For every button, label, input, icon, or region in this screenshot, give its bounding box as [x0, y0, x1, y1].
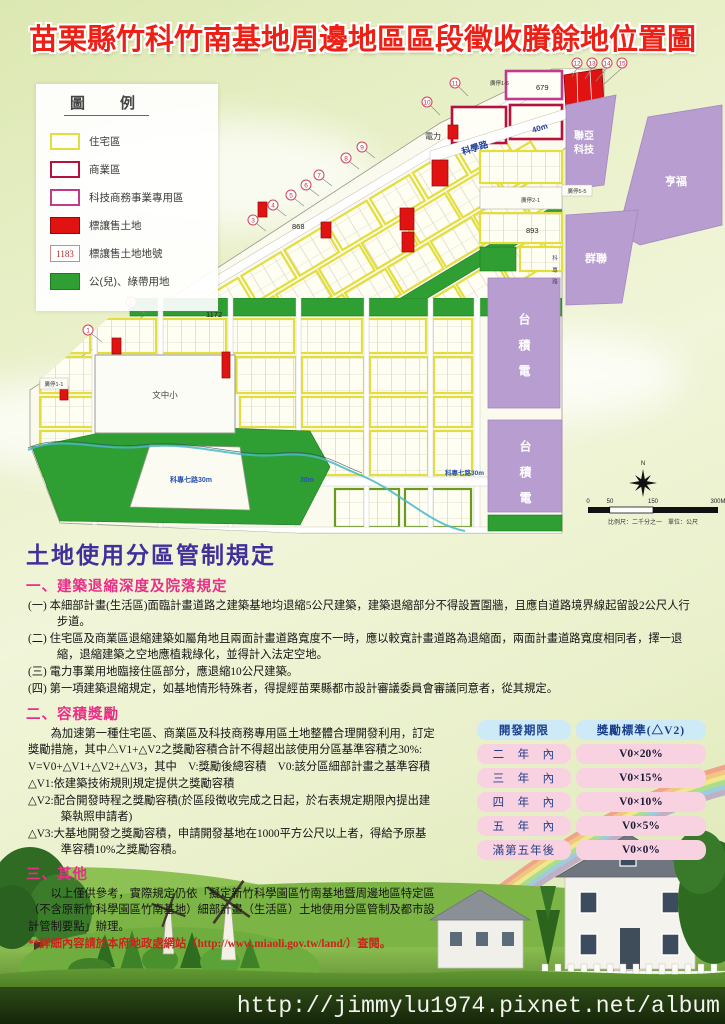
- road-kezhuan7b-label: 科專七路30m: [445, 468, 484, 477]
- watermark-url: http://jimmylu1974.pixnet.net/album: [0, 987, 725, 1024]
- power-label: 電力: [425, 131, 441, 141]
- legend-item-residential: 住宅區: [50, 133, 208, 150]
- parking-1-1-label: 廣停1-1: [45, 380, 64, 388]
- svg-text:13: 13: [588, 61, 596, 68]
- svg-text:3: 3: [251, 218, 255, 225]
- regulations-section: 土地使用分區管制規定 一、建築退縮深度及院落規定 (一) 本細部計畫(生活區)面…: [0, 536, 725, 953]
- rule-paragraph: △V2:配合開發時程之獎勵容積(於區段徵收完成之日起，於右表規定期限內提出建築執…: [28, 793, 436, 825]
- company-tsmc-label-2: 台積電: [518, 439, 532, 504]
- rule-item: (一) 本細部計畫(生活區)面臨計畫道路之建築基地均退縮5公尺建築，建築退縮部分…: [28, 598, 699, 630]
- tech-swatch: [50, 189, 80, 206]
- rule-paragraph: 以上僅供參考，實際規定仍依「擬定新竹科學園區竹南基地暨周邊地區特定區（不含原新竹…: [28, 886, 436, 934]
- website-note: **詳細內容請於本府地政處網站（http://www.miaoli.gov.tw…: [28, 936, 436, 952]
- table-row: 滿第五年後 V0×0%: [477, 840, 706, 860]
- legend-item-tech: 科技商務事業專用區: [50, 189, 208, 206]
- svg-text:1: 1: [86, 328, 90, 335]
- table-row: 四 年 內 V0×10%: [477, 792, 706, 812]
- rule-paragraph: △V1:依建築技術規則規定提供之獎勵容積: [28, 776, 436, 792]
- incentive-table: 開發期限 獎勵標準(△V2) 二 年 內 V0×20% 三 年 內 V0×15%…: [472, 716, 711, 864]
- table-row: 三 年 內 V0×15%: [477, 768, 706, 788]
- svg-text:0: 0: [586, 499, 590, 505]
- parking-5-5-label: 廣停5-5: [568, 187, 587, 195]
- section-3-heading: 三、其他: [26, 863, 462, 884]
- page-root: 苗栗縣竹科竹南基地周邊地區區段徵收賸餘地位置圖: [0, 0, 725, 1024]
- table-row: 二 年 內 V0×20%: [477, 744, 706, 764]
- regulations-title: 土地使用分區管制規定: [26, 536, 725, 570]
- company-tsmc-label-1: 台積電: [517, 312, 531, 377]
- incentive-table-container: 開發期限 獎勵標準(△V2) 二 年 內 V0×20% 三 年 內 V0×15%…: [462, 698, 725, 864]
- section-1-heading: 一、建築退縮深度及院落規定: [26, 575, 725, 596]
- company-lianya-label-2: 科技: [574, 143, 595, 156]
- legend-item-park: 公(兒)、綠帶用地: [50, 273, 208, 290]
- svg-text:9: 9: [360, 145, 364, 152]
- company-qunlian-label: 群聯: [584, 251, 607, 265]
- compass-icon: N: [629, 461, 657, 497]
- table-row: 五 年 內 V0×5%: [477, 816, 706, 836]
- road-kezhuan-label: 科專路: [551, 254, 558, 286]
- svg-text:12: 12: [573, 61, 581, 68]
- rule-item: (四) 第一項建築退縮規定，如基地情形特殊者，得提經苗栗縣都市設計審議委員會審議…: [28, 681, 699, 697]
- svg-text:N: N: [641, 461, 645, 467]
- svg-text:14: 14: [603, 61, 611, 68]
- rule-item: (二) 住宅區及商業區退縮建築如屬角地且兩面計畫道路寬度不一時，應以較寬計畫道路…: [28, 631, 699, 663]
- svg-text:15: 15: [618, 61, 626, 68]
- company-lianya-label-1: 聯亞: [574, 129, 594, 142]
- regulations-left-column: 二、容積獎勵 為加速第一種住宅區、商業區及科技商務專用區土地整體合理開發利用，訂…: [0, 698, 462, 952]
- sale-swatch: [50, 217, 80, 234]
- parking-1-6-label: 廣停1-6: [490, 79, 509, 87]
- scale-caption: 比例尺：二千分之一 單位：公尺: [608, 518, 698, 526]
- legend-item-sale: 標讓售土地: [50, 217, 208, 234]
- parcel-893: 893: [526, 226, 539, 235]
- rule-paragraph: 為加速第一種住宅區、商業區及科技商務專用區土地整體合理開發利用，訂定獎勵措施，其…: [28, 726, 436, 758]
- section-2-heading: 二、容積獎勵: [26, 703, 462, 724]
- page-title: 苗栗縣竹科竹南基地周邊地區區段徵收賸餘地位置圖: [0, 16, 725, 58]
- legend-title: 圖 例: [64, 92, 149, 116]
- svg-text:11: 11: [452, 81, 459, 88]
- svg-text:300M: 300M: [710, 499, 725, 505]
- svg-text:7: 7: [317, 173, 321, 180]
- company-hengfu-label: 亨福: [665, 174, 687, 188]
- rule-paragraph: △V3:大基地開發之獎勵容積，申請開發基地在1000平方公尺以上者，得給予原基準…: [28, 826, 436, 858]
- svg-text:6: 6: [304, 183, 308, 190]
- legend-item-commercial: 商業區: [50, 161, 208, 178]
- svg-text:5: 5: [289, 193, 293, 200]
- residential-swatch: [50, 133, 80, 150]
- road-30m-label: 30m: [300, 477, 314, 484]
- rule-paragraph: V=V0+△V1+△V2+△V3，其中 V:獎勵後總容積 V0:該分區細部計畫之…: [28, 759, 436, 775]
- legend-item-parcel-number: 1183 標讓售土地地號: [50, 245, 208, 262]
- park-swatch: [50, 273, 80, 290]
- scale-bar: 0 50 150 300M 比例尺：二千分之一 單位：公尺: [586, 499, 725, 526]
- road-kezhuan7-label: 科專七路30m: [170, 475, 212, 484]
- table-header-value: 獎勵標準(△V2): [576, 720, 706, 740]
- svg-text:50: 50: [607, 499, 614, 505]
- map-legend: 圖 例 住宅區 商業區 科技商務事業專用區 標讓售土地 1183 標讓售土地地號…: [36, 84, 218, 311]
- table-header-term: 開發期限: [477, 720, 571, 740]
- svg-text:8: 8: [344, 156, 348, 163]
- svg-text:4: 4: [271, 203, 275, 210]
- commercial-swatch: [50, 161, 80, 178]
- svg-text:150: 150: [648, 499, 659, 505]
- parcel-1172: 1172: [206, 310, 222, 319]
- parcel-number-swatch: 1183: [50, 245, 80, 262]
- rule-item: (三) 電力事業用地臨接住區部分，應退縮10公尺建築。: [28, 664, 699, 680]
- parcel-679: 679: [536, 83, 549, 92]
- parcel-868: 868: [292, 222, 305, 231]
- svg-text:10: 10: [423, 100, 431, 107]
- parking-2-1-label: 廣停2-1: [521, 196, 540, 204]
- school-label: 文中小: [152, 390, 178, 400]
